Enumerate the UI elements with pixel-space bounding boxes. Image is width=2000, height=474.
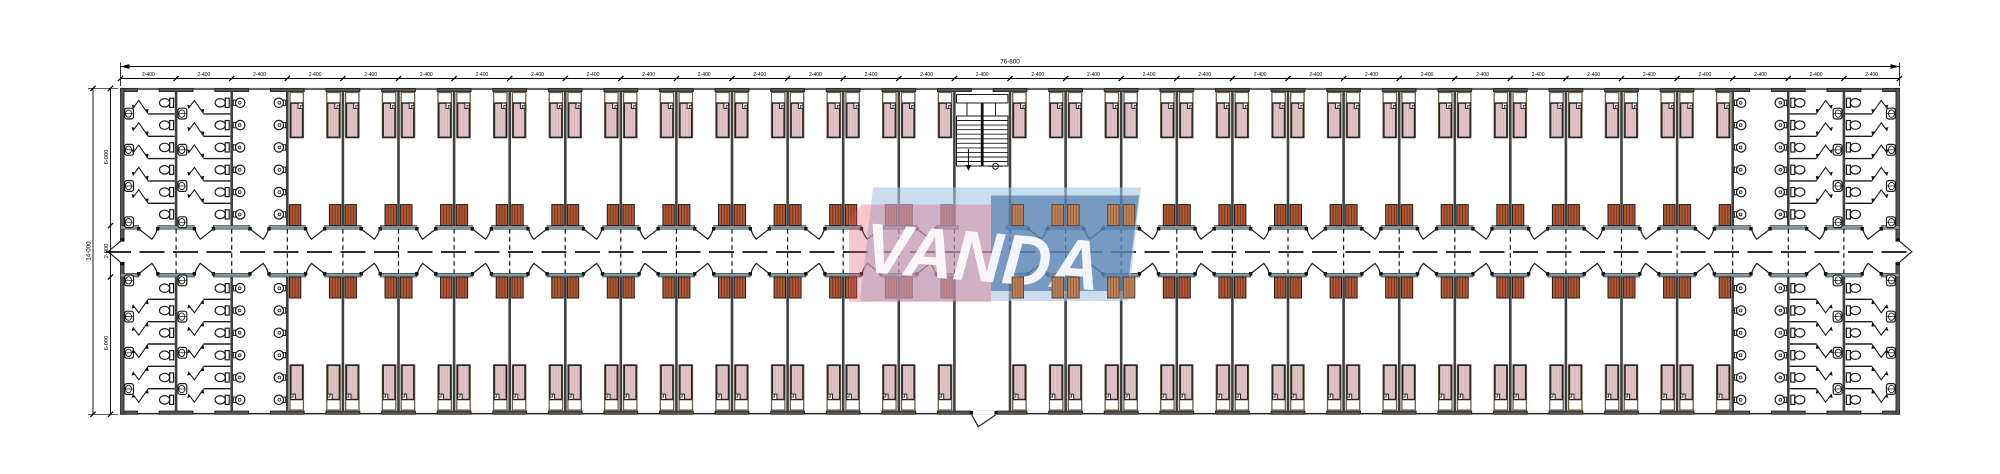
svg-text:2-400: 2-400 (1198, 72, 1211, 78)
svg-text:2-400: 2-400 (198, 72, 211, 78)
svg-text:2-400: 2-400 (253, 72, 266, 78)
svg-text:2-400: 2-400 (1087, 72, 1100, 78)
svg-text:2-400: 2-400 (642, 72, 655, 78)
svg-text:2-400: 2-400 (1476, 72, 1489, 78)
svg-text:2-400: 2-400 (1143, 72, 1156, 78)
svg-text:2-000: 2-000 (104, 244, 110, 259)
svg-text:2-400: 2-400 (420, 72, 433, 78)
svg-text:2-400: 2-400 (1421, 72, 1434, 78)
svg-text:2-400: 2-400 (142, 72, 155, 78)
svg-text:2-400: 2-400 (1865, 72, 1878, 78)
svg-text:2-400: 2-400 (1309, 72, 1322, 78)
svg-text:2-400: 2-400 (476, 72, 489, 78)
svg-text:2-400: 2-400 (1810, 72, 1823, 78)
svg-text:2-400: 2-400 (753, 72, 766, 78)
svg-text:2-400: 2-400 (587, 72, 600, 78)
svg-text:2-400: 2-400 (1031, 72, 1044, 78)
svg-text:14-000: 14-000 (86, 241, 93, 261)
svg-text:6-000: 6-000 (104, 150, 110, 165)
svg-text:2-400: 2-400 (865, 72, 878, 78)
svg-text:2-400: 2-400 (920, 72, 933, 78)
svg-text:2-400: 2-400 (698, 72, 711, 78)
svg-text:76-800: 76-800 (1000, 59, 1020, 66)
svg-text:2-400: 2-400 (809, 72, 822, 78)
svg-text:2-400: 2-400 (1699, 72, 1712, 78)
svg-text:2-400: 2-400 (309, 72, 322, 78)
svg-text:6-000: 6-000 (104, 336, 110, 351)
svg-text:2-400: 2-400 (531, 72, 544, 78)
svg-text:2-400: 2-400 (976, 72, 989, 78)
svg-text:2-400: 2-400 (1587, 72, 1600, 78)
svg-text:2-400: 2-400 (1754, 72, 1767, 78)
svg-text:2-400: 2-400 (1254, 72, 1267, 78)
svg-text:2-400: 2-400 (1532, 72, 1545, 78)
svg-text:2-400: 2-400 (1643, 72, 1656, 78)
svg-text:2-400: 2-400 (1365, 72, 1378, 78)
svg-text:2-400: 2-400 (364, 72, 377, 78)
